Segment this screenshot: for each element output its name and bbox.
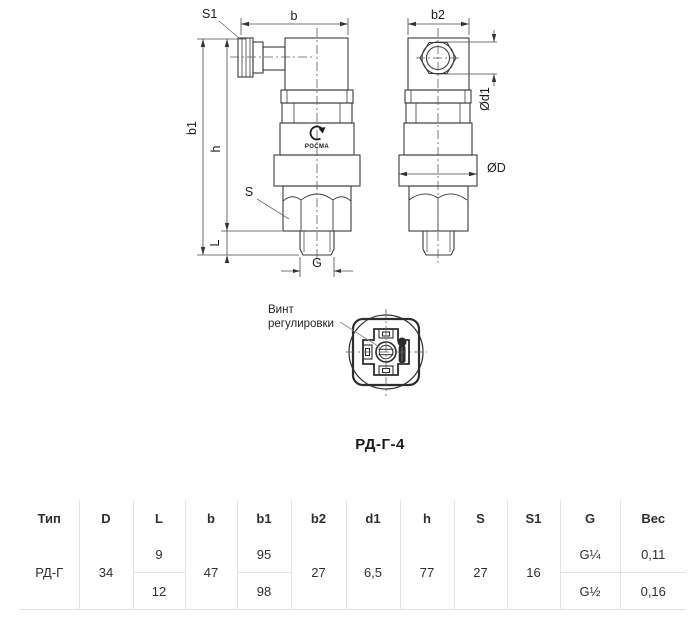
cell-L-1: 9 (133, 536, 185, 573)
col-header-D: D (79, 500, 133, 536)
cell-b1-2: 98 (237, 573, 291, 610)
col-header-L: L (133, 500, 185, 536)
technical-drawing: S1 b b1 h L S G РОСМА (0, 0, 700, 470)
dim-label-D: ØD (487, 161, 506, 175)
dimensions-table: Тип D L b b1 b2 d1 h S S1 G Вес РД-Г 3 (20, 500, 686, 610)
col-header-S1: S1 (507, 500, 560, 536)
cell-b2: 27 (291, 536, 346, 610)
dim-label-b1: b1 (185, 121, 199, 135)
cell-d1: 6,5 (346, 536, 400, 610)
gland-ribbed-nut (238, 38, 253, 77)
col-header-b1: b1 (237, 500, 291, 536)
cell-S: 27 (454, 536, 507, 610)
dim-label-l: L (208, 239, 222, 246)
dim-label-b: b (291, 9, 298, 23)
gland-neck (263, 47, 285, 70)
gland-collar (253, 42, 263, 73)
cell-b: 47 (185, 536, 237, 610)
dim-label-d1: Ød1 (478, 87, 492, 111)
pressure-switch-side-view (238, 38, 360, 255)
cell-S1: 16 (507, 536, 560, 610)
col-header-type: Тип (20, 500, 79, 536)
cell-type: РД-Г (20, 536, 79, 610)
dim-label-s1: S1 (202, 7, 217, 21)
dim-label-g: G (312, 256, 322, 270)
col-header-b2: b2 (291, 500, 346, 536)
cell-h: 77 (400, 536, 454, 610)
adjustment-screw-label-line1: Винт (268, 304, 294, 316)
cell-b1-1: 95 (237, 536, 291, 573)
datasheet-page: S1 b b1 h L S G РОСМА (0, 0, 700, 624)
model-title: РД-Г-4 (338, 436, 422, 453)
dimensions-table-container: Тип D L b b1 b2 d1 h S S1 G Вес РД-Г 3 (20, 500, 686, 610)
col-header-h: h (400, 500, 454, 536)
adjustment-screw-label-line2: регулировки (268, 318, 334, 330)
cell-weight-2: 0,16 (620, 573, 686, 610)
table-header-row: Тип D L b b1 b2 d1 h S S1 G Вес (20, 500, 686, 536)
col-header-S: S (454, 500, 507, 536)
dim-label-h: h (209, 145, 223, 152)
cell-G-1: G¼ (560, 536, 620, 573)
logo-text: РОСМА (305, 144, 329, 150)
connector-front (408, 38, 469, 90)
col-header-weight: Вес (620, 500, 686, 536)
hex-nut-front (409, 186, 468, 231)
gland-ribs (242, 38, 250, 77)
connector-housing (285, 38, 348, 90)
col-header-d1: d1 (346, 500, 400, 536)
table-row-1: РД-Г 34 9 47 95 27 6,5 77 27 16 G¼ 0,11 (20, 536, 686, 573)
cell-G-2: G½ (560, 573, 620, 610)
dim-label-b2: b2 (431, 8, 445, 22)
cell-L-2: 12 (133, 573, 185, 610)
col-header-G: G (560, 500, 620, 536)
cell-weight-1: 0,11 (620, 536, 686, 573)
cell-D: 34 (79, 536, 133, 610)
col-header-b: b (185, 500, 237, 536)
fixing-screw (398, 338, 407, 364)
threaded-stub-front (423, 231, 454, 255)
dim-label-s: S (245, 185, 253, 199)
hex-nut (283, 186, 351, 231)
